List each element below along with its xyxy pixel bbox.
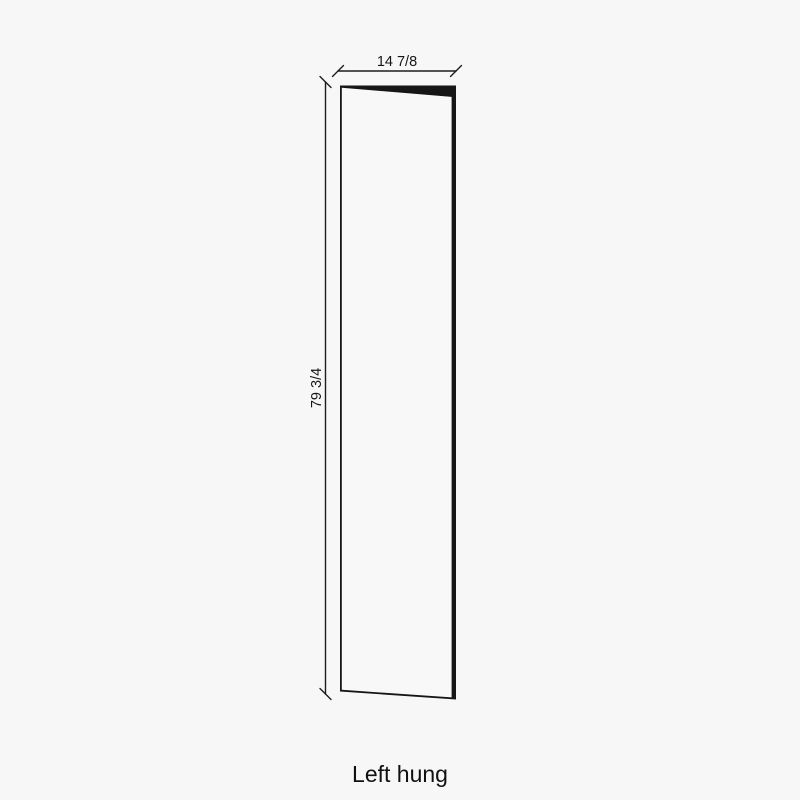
door bbox=[340, 86, 456, 700]
diagram-caption: Left hung bbox=[352, 761, 448, 787]
height-dimension-label: 79 3/4 bbox=[309, 368, 325, 408]
width-dimension-label: 14 7/8 bbox=[377, 54, 417, 70]
diagram-canvas: 14 7/8 79 3/4 Left hung bbox=[0, 0, 800, 800]
door-front-face bbox=[342, 88, 452, 698]
door-dimension-diagram: 14 7/8 79 3/4 Left hung bbox=[0, 0, 800, 800]
